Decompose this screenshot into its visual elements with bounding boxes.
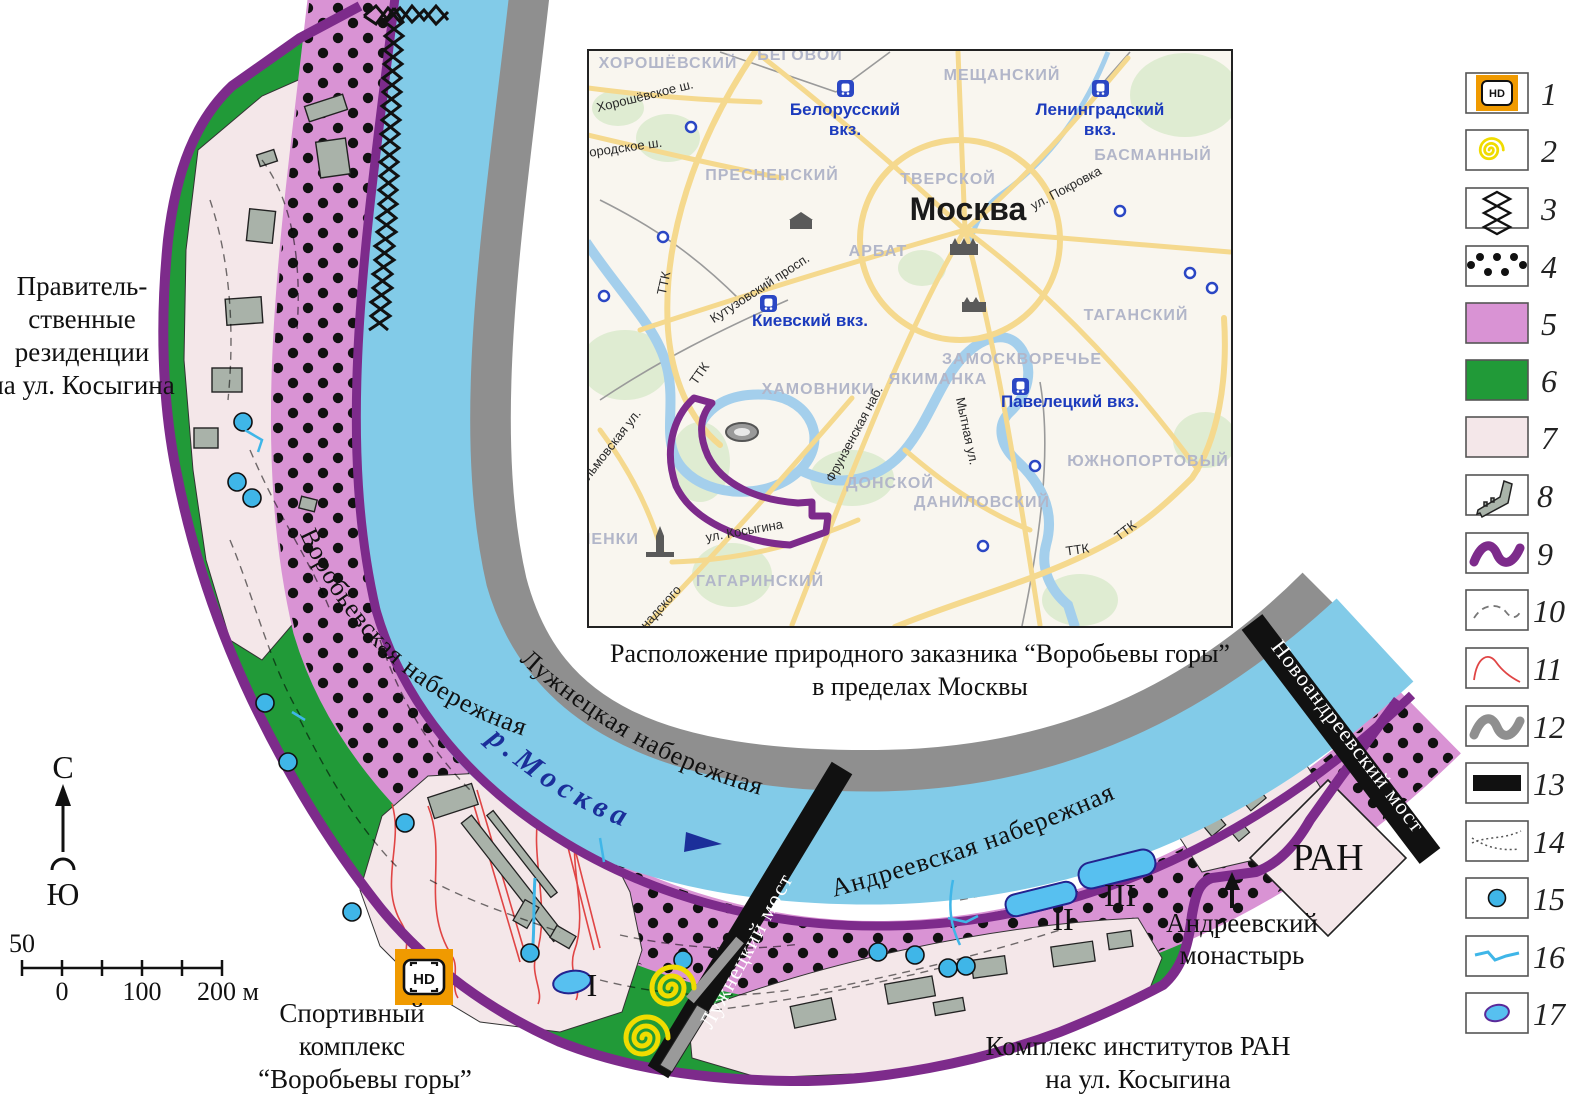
- zone-numeral-1: I: [587, 967, 598, 1003]
- svg-text:ХАМОВНИКИ: ХАМОВНИКИ: [762, 381, 875, 398]
- svg-text:Киевский вкз.: Киевский вкз.: [752, 311, 868, 330]
- svg-text:ПРЕСНЕНСКИЙ: ПРЕСНЕНСКИЙ: [705, 165, 839, 184]
- svg-text:3: 3: [1540, 191, 1557, 227]
- svg-text:15: 15: [1533, 881, 1565, 917]
- legend-numbers: 1 2 3 4 5 6 7 8 9 10 11 12 13 14 15 16 1…: [1533, 76, 1567, 1032]
- svg-text:ЗАМОСКВОРЕЧЬЕ: ЗАМОСКВОРЕЧЬЕ: [942, 351, 1102, 368]
- scale-100: 100: [123, 977, 162, 1006]
- svg-text:МЕНКИ: МЕНКИ: [577, 531, 639, 548]
- scale-bar: 50 0 100 200 м: [9, 929, 259, 1006]
- gov-label-3: резиденции: [15, 337, 149, 367]
- inset-caption-line2: в пределах Москвы: [812, 672, 1028, 701]
- svg-text:вкз.: вкз.: [1084, 120, 1116, 139]
- svg-text:ТАГАНСКИЙ: ТАГАНСКИЙ: [1084, 305, 1189, 324]
- scale-0: 0: [56, 977, 69, 1006]
- svg-text:17: 17: [1533, 996, 1567, 1032]
- svg-text:МЕЩАНСКИЙ: МЕЩАНСКИЙ: [944, 65, 1061, 84]
- sport-label-1: Спортивный: [279, 998, 424, 1028]
- monastery-label-1: Андреевский: [1166, 908, 1318, 938]
- ran-complex-label-2: на ул. Косыгина: [1045, 1064, 1230, 1094]
- ran-complex-label-1: Комплекс институтов РАН: [986, 1031, 1291, 1061]
- map-page: HD: [0, 0, 1583, 1106]
- compass-arrow: [55, 784, 71, 806]
- svg-text:ЯКИМАНКА: ЯКИМАНКА: [889, 371, 988, 388]
- sport-label-3: “Воробьевы горы”: [258, 1064, 472, 1094]
- svg-text:ЮЖНОПОРТОВЫЙ: ЮЖНОПОРТОВЫЙ: [1067, 451, 1229, 470]
- gov-label-2: ственные: [28, 304, 135, 334]
- svg-text:8: 8: [1537, 478, 1553, 514]
- svg-text:5: 5: [1541, 306, 1557, 342]
- gov-label-4: на ул. Косыгина: [0, 370, 175, 400]
- inset-caption-line1: Расположение природного заказника “Вороб…: [610, 639, 1230, 668]
- monastery-label-2: монастырь: [1180, 940, 1305, 970]
- scale-200: 200 м: [197, 977, 259, 1006]
- scale-50: 50: [9, 929, 35, 958]
- svg-text:ДОНСКОЙ: ДОНСКОЙ: [846, 473, 934, 492]
- svg-text:Ленинградский: Ленинградский: [1036, 100, 1165, 119]
- inset-map: ХОРОШЁВСКИЙ БЕГОВОЙ МЕЩАНСКИЙ ПРЕСНЕНСКИ…: [575, 45, 1240, 701]
- svg-text:1: 1: [1541, 76, 1557, 112]
- hd-marker-label: HD: [413, 971, 435, 988]
- sport-label-2: комплекс: [299, 1031, 405, 1061]
- inset-city-label: Москва: [910, 191, 1027, 227]
- svg-text:14: 14: [1533, 824, 1565, 860]
- vorobyovy-gory-map: HD: [0, 0, 1583, 1106]
- svg-text:6: 6: [1541, 363, 1557, 399]
- svg-text:ТВЕРСКОЙ: ТВЕРСКОЙ: [900, 169, 996, 188]
- compass: С Ю: [47, 749, 80, 912]
- svg-text:12: 12: [1533, 709, 1565, 745]
- svg-text:БАСМАННЫЙ: БАСМАННЫЙ: [1094, 145, 1212, 164]
- gov-label-1: Правитель-: [17, 271, 148, 301]
- legend-spring: [1489, 890, 1506, 907]
- svg-text:7: 7: [1541, 420, 1559, 456]
- svg-text:11: 11: [1533, 651, 1563, 687]
- legend-bridge: [1473, 775, 1521, 791]
- svg-text:13: 13: [1533, 766, 1565, 802]
- compass-north-label: С: [52, 749, 73, 785]
- svg-text:Белорусский: Белорусский: [790, 100, 900, 119]
- svg-text:Павелецкий вкз.: Павелецкий вкз.: [1001, 392, 1139, 411]
- svg-text:АРБАТ: АРБАТ: [849, 243, 908, 260]
- svg-text:ГАГАРИНСКИЙ: ГАГАРИНСКИЙ: [696, 571, 824, 590]
- zone-numeral-3: III: [1104, 877, 1136, 913]
- svg-text:ХОРОШЁВСКИЙ: ХОРОШЁВСКИЙ: [599, 53, 738, 72]
- svg-text:9: 9: [1537, 536, 1553, 572]
- svg-text:4: 4: [1541, 249, 1557, 285]
- hd-marker: HD: [395, 949, 453, 1005]
- svg-text:16: 16: [1533, 939, 1565, 975]
- zone-numeral-2: II: [1052, 901, 1073, 937]
- svg-text:2: 2: [1541, 133, 1557, 169]
- svg-text:вкз.: вкз.: [829, 120, 861, 139]
- svg-text:HD: HD: [1489, 88, 1505, 100]
- svg-text:БЕГОВОЙ: БЕГОВОЙ: [757, 45, 843, 64]
- ran-label: РАН: [1292, 837, 1363, 879]
- compass-south-label: Ю: [47, 876, 80, 912]
- legend: HD: [1466, 73, 1567, 1033]
- legend-hd-marker: HD: [1476, 75, 1518, 111]
- svg-text:ДАНИЛОВСКИЙ: ДАНИЛОВСКИЙ: [914, 492, 1050, 511]
- svg-text:10: 10: [1533, 593, 1565, 629]
